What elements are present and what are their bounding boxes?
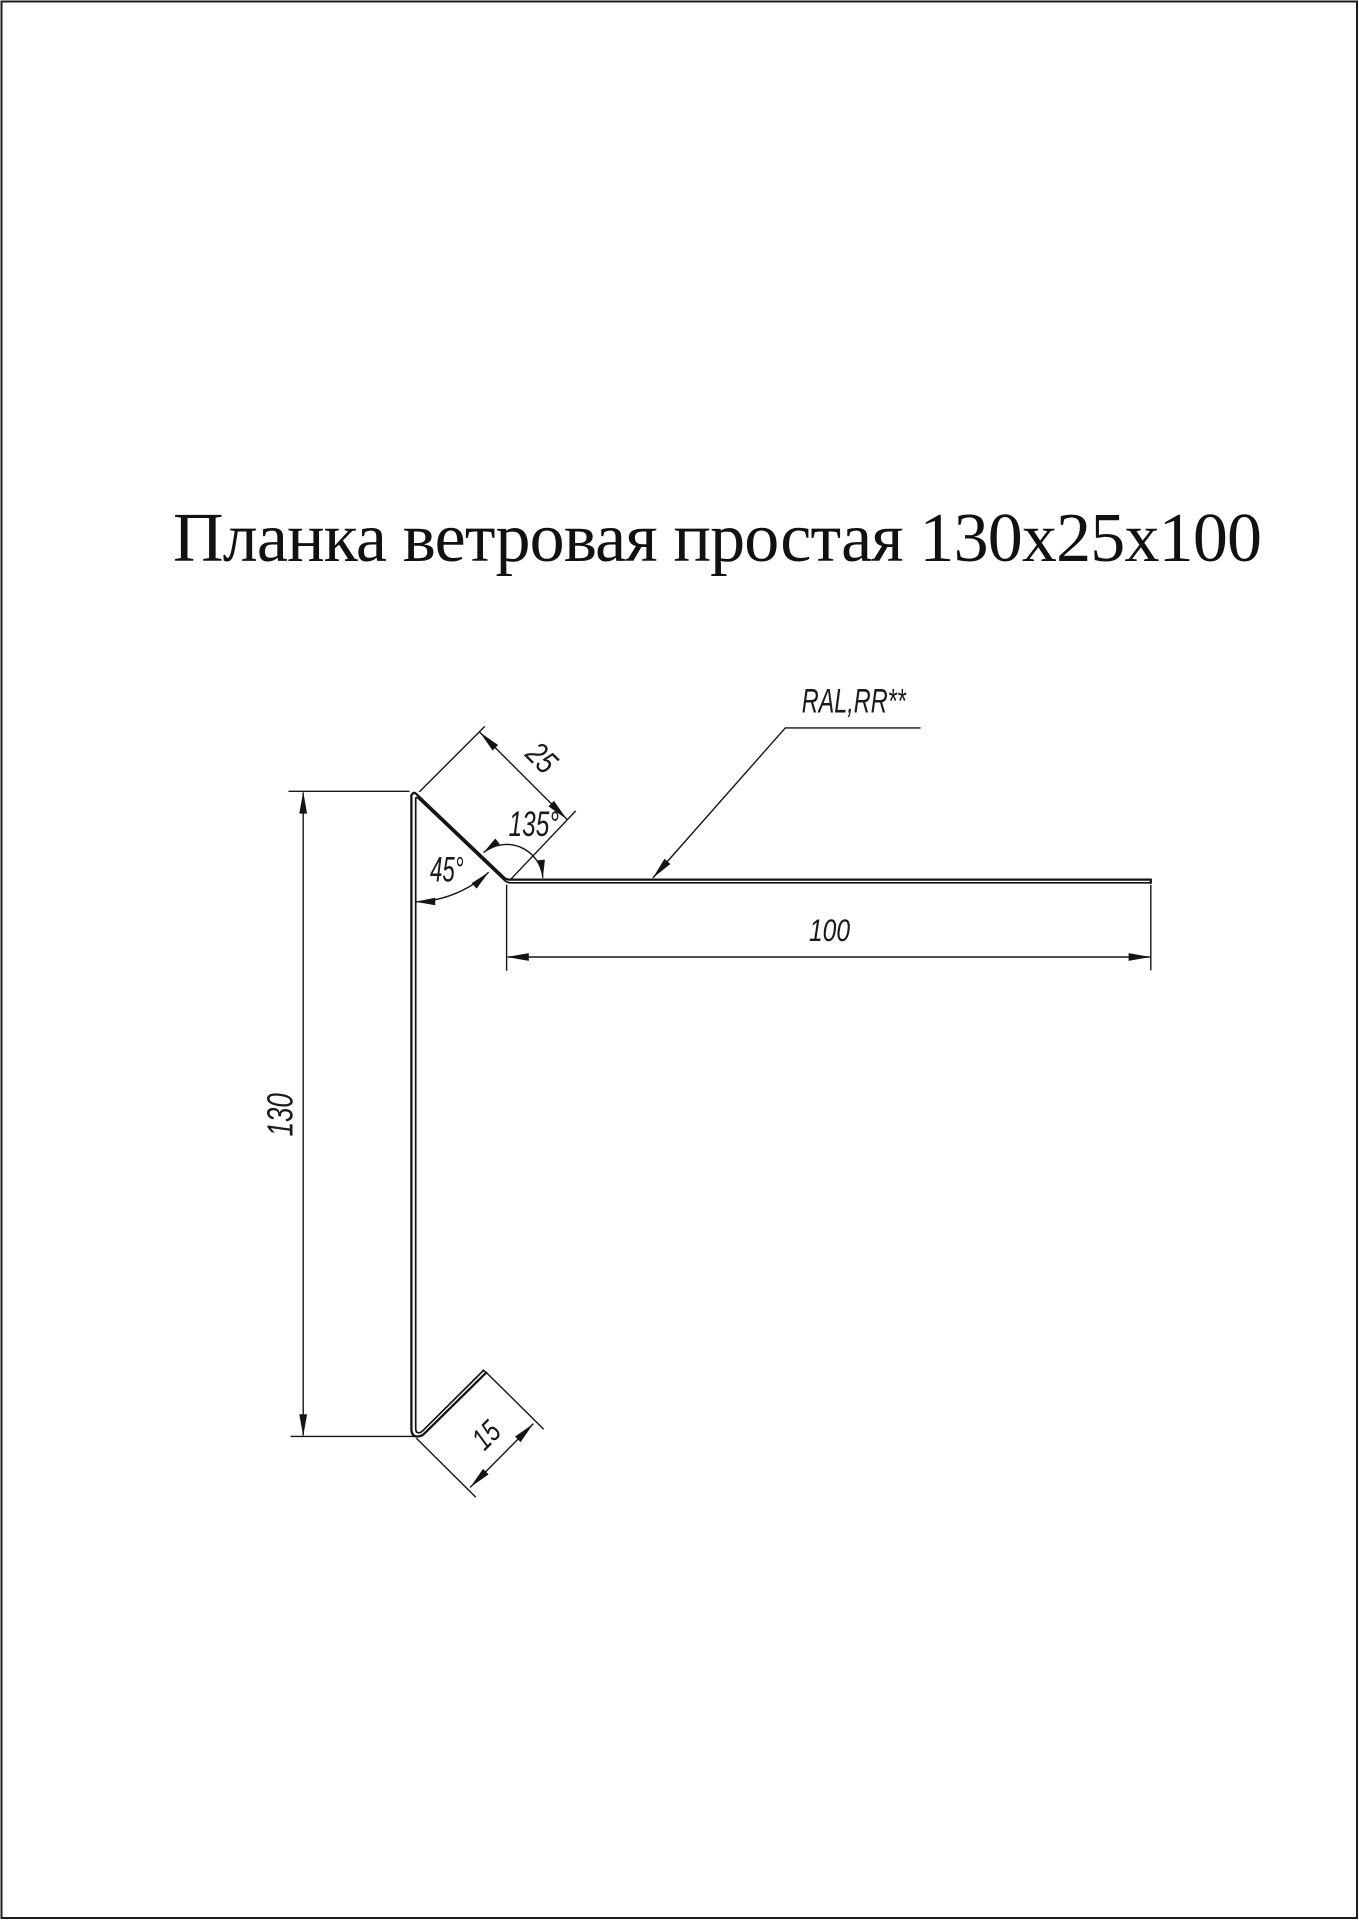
svg-text:135°: 135° (509, 806, 559, 844)
svg-text:45°: 45° (430, 851, 464, 890)
svg-text:25: 25 (518, 735, 564, 781)
svg-text:RAL,RR**: RAL,RR** (802, 683, 908, 720)
svg-text:100: 100 (809, 912, 850, 948)
svg-text:15: 15 (464, 1413, 507, 1456)
svg-text:130: 130 (260, 1093, 300, 1137)
